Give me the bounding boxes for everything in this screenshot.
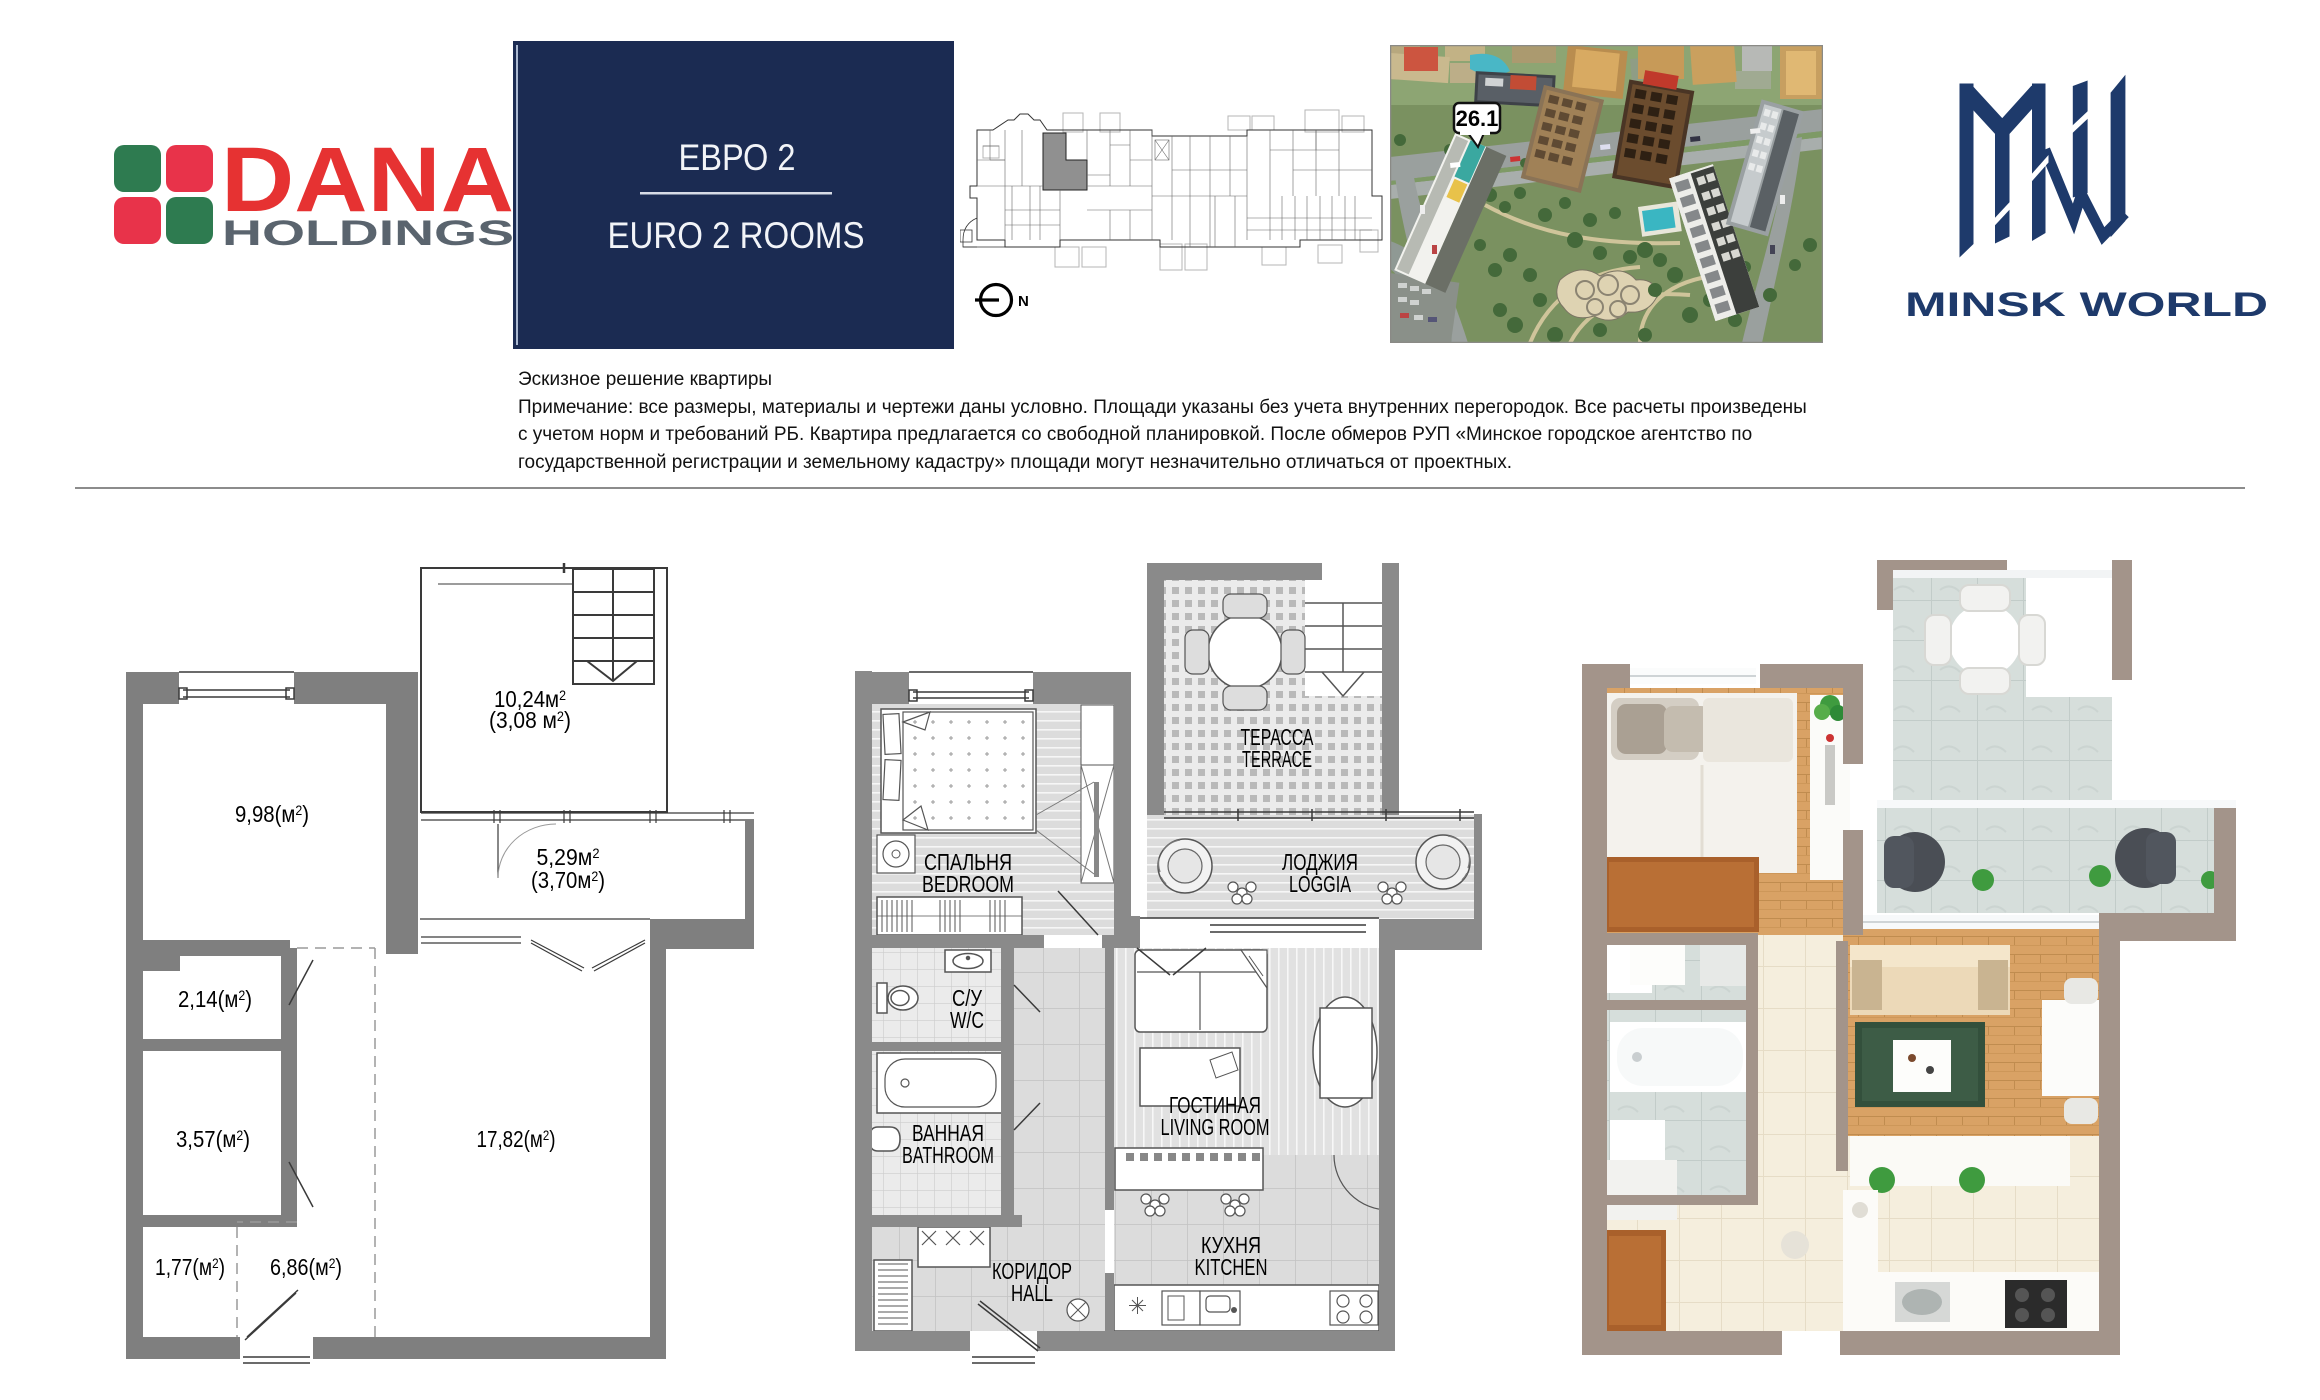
- svg-text:2,14(м2): 2,14(м2): [178, 986, 252, 1012]
- svg-text:9,98(м2): 9,98(м2): [235, 801, 309, 827]
- svg-text:HOLDINGS: HOLDINGS: [222, 214, 514, 253]
- svg-text:BATHROOM: BATHROOM: [902, 1142, 994, 1168]
- svg-text:(3,70м2): (3,70м2): [531, 867, 605, 893]
- svg-text:17,82(м2): 17,82(м2): [477, 1126, 556, 1152]
- svg-text:BEDROOM: BEDROOM: [922, 871, 1014, 897]
- svg-text:TERRACE: TERRACE: [1242, 746, 1312, 772]
- svg-text:HALL: HALL: [1011, 1280, 1053, 1306]
- svg-text:3,57(м2): 3,57(м2): [176, 1126, 250, 1152]
- svg-text:EURO 2 ROOMS: EURO 2 ROOMS: [608, 215, 865, 256]
- svg-text:6,86(м2): 6,86(м2): [270, 1254, 342, 1280]
- svg-text:1,77(м2): 1,77(м2): [155, 1254, 225, 1280]
- svg-text:LIVING ROOM: LIVING ROOM: [1161, 1114, 1270, 1140]
- svg-text:26.1: 26.1: [1456, 106, 1499, 131]
- svg-text:ЕВРО 2: ЕВРО 2: [679, 137, 796, 178]
- svg-text:N: N: [1018, 293, 1029, 310]
- svg-text:LOGGIA: LOGGIA: [1289, 871, 1351, 897]
- svg-text:W/C: W/C: [950, 1007, 984, 1033]
- svg-text:(3,08 м2): (3,08 м2): [489, 707, 571, 733]
- svg-text:MINSK WORLD: MINSK WORLD: [1905, 286, 2268, 324]
- svg-text:KITCHEN: KITCHEN: [1195, 1254, 1268, 1280]
